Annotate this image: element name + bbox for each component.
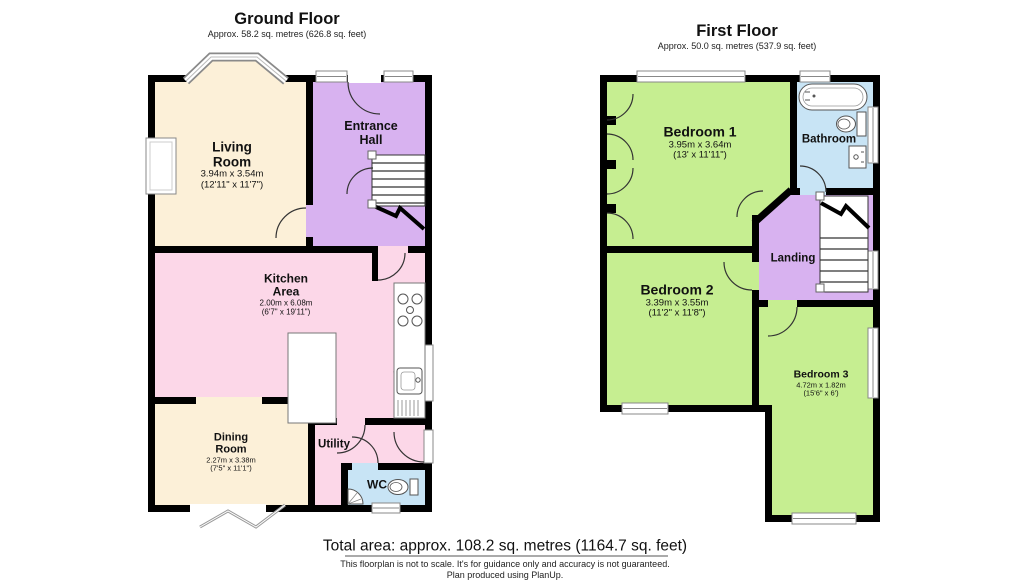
bedroom3-label: Bedroom 3 4.72m x 1.82m (15'6" x 6') bbox=[766, 370, 876, 399]
staircase-landing bbox=[816, 192, 869, 292]
ground-floor-title: Ground Floor bbox=[234, 10, 339, 28]
entrance-hall-label: Entrance Hall bbox=[336, 119, 406, 147]
wc-label: WC bbox=[367, 478, 387, 491]
landing-label: Landing bbox=[771, 253, 816, 266]
living-door-opening bbox=[306, 205, 313, 237]
kitchen-label: Kitchen Area 2.00m x 6.08m (6'7" x 19'11… bbox=[231, 273, 341, 318]
total-area-text: Total area: approx. 108.2 sq. metres (11… bbox=[323, 537, 687, 554]
dining-opening bbox=[196, 397, 262, 404]
toilet-cistern bbox=[857, 112, 866, 136]
bedroom2-floor bbox=[604, 250, 756, 409]
ground-floor-subtitle: Approx. 58.2 sq. metres (626.8 sq. feet) bbox=[208, 29, 367, 39]
floor-plan-graphic bbox=[0, 0, 1024, 583]
bedroom2-label: Bedroom 2 3.39m x 3.55m (11'2" x 11'8") bbox=[617, 283, 737, 320]
kitchen-peninsula bbox=[288, 333, 336, 423]
front-door-opening bbox=[348, 74, 381, 83]
bedroom3-door-opening bbox=[768, 300, 797, 307]
utility-door-opening bbox=[337, 418, 365, 425]
living-room-label: Living Room 3.94m x 3.54m (12'11" x 11'7… bbox=[177, 139, 287, 190]
bedroom3-floor bbox=[756, 304, 876, 519]
bedroom2-door-opening bbox=[752, 262, 759, 290]
disclaimer-line2: Plan produced using PlanUp. bbox=[447, 570, 564, 580]
wc-door-opening bbox=[352, 463, 378, 470]
bedroom1-label: Bedroom 1 3.95m x 3.64m (13' x 11'11") bbox=[640, 125, 760, 162]
disclaimer-line1: This floorplan is not to scale. It's for… bbox=[340, 559, 669, 569]
first-floor-subtitle: Approx. 50.0 sq. metres (537.9 sq. feet) bbox=[658, 41, 817, 51]
sink-icon bbox=[397, 368, 422, 394]
utility-back-door-leaf bbox=[424, 430, 433, 463]
bay-opening bbox=[190, 75, 281, 82]
bathroom-label: Bathroom bbox=[802, 134, 856, 147]
dining-room-label: Dining Room 2.27m x 3.38m (7'5" x 11'1") bbox=[176, 431, 286, 472]
toilet-cistern bbox=[410, 479, 418, 495]
toilet-icon bbox=[837, 116, 856, 132]
basin-icon bbox=[849, 146, 866, 168]
first-floor-title: First Floor bbox=[696, 22, 778, 40]
kitchen-door-opening bbox=[378, 246, 408, 253]
toilet-icon bbox=[388, 480, 408, 495]
utility-label: Utility bbox=[318, 439, 350, 452]
floorplan-canvas: Ground Floor Approx. 58.2 sq. metres (62… bbox=[0, 0, 1024, 583]
